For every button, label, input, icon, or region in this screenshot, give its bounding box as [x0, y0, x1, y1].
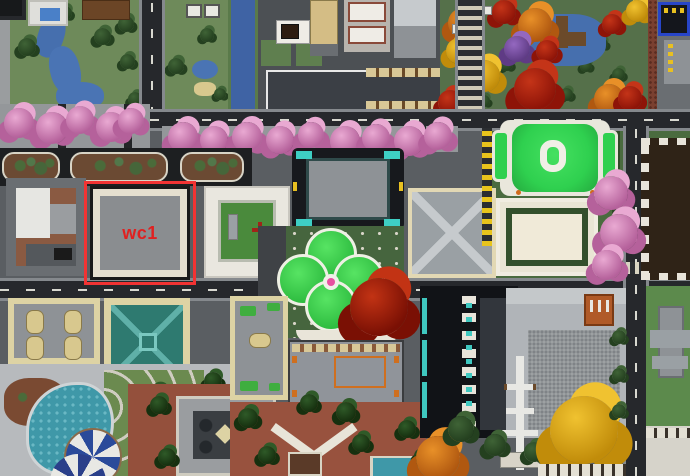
east-hall-wing	[652, 356, 688, 369]
hall-crenellation	[641, 273, 690, 280]
street-tree-icon	[612, 368, 626, 382]
hall-crenellation	[641, 138, 649, 280]
dark-complex	[266, 70, 366, 112]
ruins-foundation	[334, 356, 386, 388]
pagoda-arm	[504, 384, 536, 390]
court-pad	[26, 336, 44, 360]
autumn-tree-icon	[618, 86, 642, 110]
park-tree-icon	[120, 54, 135, 69]
autumn-tree-icon	[536, 40, 558, 62]
palm-tree-icon	[238, 408, 258, 428]
canal	[228, 0, 258, 112]
park-tree-icon	[484, 434, 506, 456]
interior-appliance	[54, 248, 72, 260]
park-tree-icon	[94, 28, 111, 45]
cherry-tree-icon	[36, 112, 68, 144]
dark-house	[0, 0, 26, 20]
cherry-tree-icon	[66, 106, 94, 134]
lawn-patch	[267, 303, 280, 311]
palm-tree-icon	[258, 446, 276, 464]
crosswalk-road	[458, 0, 482, 130]
mall-lamp	[293, 182, 297, 191]
ruins-pillar	[292, 390, 297, 397]
small-pond	[192, 60, 218, 79]
cream-courtyard	[230, 296, 288, 400]
tan-courtyard	[8, 298, 100, 364]
park-tree-icon	[448, 416, 474, 442]
autumn-tree-icon	[602, 14, 622, 34]
autumn-tree-icon	[416, 436, 460, 476]
teal-windows	[466, 300, 472, 420]
conifer-icon	[560, 88, 573, 101]
brick-path	[648, 0, 657, 112]
map-canvas[interactable]: wc1	[0, 0, 690, 476]
palm-tree-icon	[300, 394, 318, 412]
shed-pillar	[606, 300, 609, 312]
interior-room	[16, 188, 50, 238]
roof-panel	[348, 26, 386, 44]
park-tree-icon	[524, 442, 544, 462]
cherry-tree-icon	[298, 122, 324, 148]
mall-lamp	[399, 182, 403, 191]
autumn-tree-icon	[626, 0, 648, 22]
stadium-gate	[516, 190, 521, 195]
lawn-patch	[240, 381, 258, 391]
sand-patch	[194, 82, 216, 96]
conifer-icon	[612, 68, 625, 81]
lawn-patch	[269, 383, 280, 391]
interior-room	[50, 204, 76, 234]
ruins-pillar	[394, 356, 399, 363]
teal-corner	[296, 151, 312, 159]
cherry-tree-icon	[118, 108, 144, 134]
brown-building	[82, 0, 130, 20]
garden-hut	[204, 4, 220, 18]
ruins-pillar	[394, 390, 399, 397]
road-vertical-west	[142, 0, 162, 116]
teal-trim	[422, 340, 427, 376]
palm-tree-icon	[336, 402, 356, 422]
garden-hut	[186, 4, 202, 18]
court-pad	[26, 310, 44, 334]
street-tree-icon	[612, 330, 626, 344]
shed-pillar	[590, 300, 593, 312]
park-tree-icon	[18, 38, 36, 56]
roof-panel	[348, 2, 386, 22]
annotation-label: wc1	[122, 223, 158, 244]
pagoda-arm	[502, 430, 538, 436]
house-pool	[40, 8, 60, 21]
pond-deck	[556, 16, 568, 48]
ruins-pillar	[292, 356, 297, 363]
hall-crenellation	[641, 138, 690, 145]
teal-corner	[384, 151, 400, 159]
window-dots	[668, 44, 673, 72]
stadium-wing	[492, 130, 510, 182]
court-pad	[64, 336, 82, 360]
shed-pillar	[598, 300, 601, 312]
pagoda-arm	[506, 408, 534, 414]
cherry-tree-icon	[4, 108, 34, 138]
court-pad	[64, 310, 82, 334]
park-tree-icon	[168, 58, 184, 74]
lawn-patch	[240, 306, 256, 316]
autumn-tree-icon	[504, 36, 530, 62]
palm-tree-icon	[398, 420, 416, 438]
annotation-box: wc1	[84, 181, 196, 285]
palm-tree-icon	[150, 396, 168, 414]
cherry-tree-icon	[266, 126, 294, 154]
mall-interior	[306, 158, 390, 220]
window-dots	[664, 8, 686, 13]
gray-building	[394, 26, 436, 58]
white-plaza-core	[506, 208, 588, 266]
ruins-arch-row	[292, 344, 400, 352]
stadium-fence	[482, 128, 492, 246]
autumn-tree-icon	[492, 0, 516, 24]
gray-building	[394, 0, 436, 26]
park-tree-icon	[200, 28, 214, 42]
teal-trim	[422, 382, 427, 418]
cherry-tree-icon	[594, 176, 628, 210]
stadium-wing	[600, 130, 618, 182]
street-tree-icon	[612, 404, 626, 418]
left-sidewalk	[0, 20, 10, 112]
palm-tree-icon	[158, 448, 176, 466]
teal-trim	[422, 298, 427, 334]
clover-fountain	[327, 278, 335, 286]
pavilion-core	[139, 333, 157, 351]
east-hall-wing	[650, 330, 690, 348]
garden-statue	[228, 214, 238, 240]
pavilion-roof	[288, 452, 322, 476]
shop-fronts	[646, 428, 690, 438]
court-pad	[249, 333, 271, 348]
garden-bed	[180, 152, 244, 182]
red-maple-icon	[350, 278, 408, 336]
brown-roof	[281, 24, 299, 39]
cherry-tree-icon	[424, 122, 452, 150]
stadium-ring	[540, 140, 566, 172]
autumn-tree-icon	[514, 68, 556, 110]
shop-fronts	[538, 464, 626, 476]
park-tree-icon	[214, 88, 226, 100]
palm-tree-icon	[352, 434, 370, 452]
cherry-tree-icon	[600, 214, 638, 252]
yellow-autumn-tree-icon	[550, 396, 618, 464]
tan-tower-base	[310, 44, 338, 56]
cherry-tree-icon	[592, 250, 622, 280]
